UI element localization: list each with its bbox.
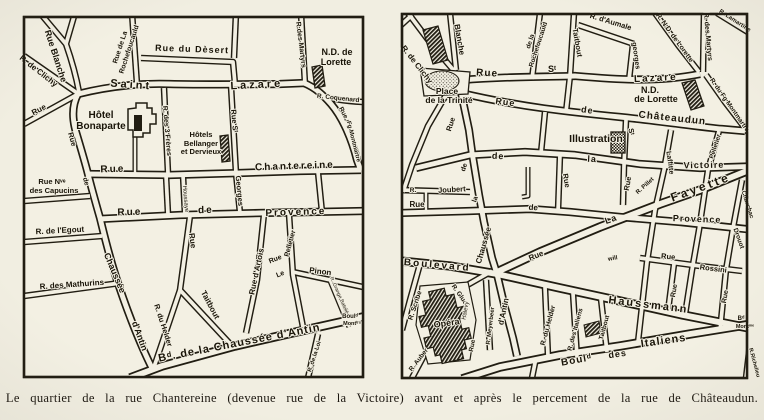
svg-text:Le quartier de la rue Chantere: Le quartier de la rue Chantereine (deven… xyxy=(6,391,758,405)
svg-text:Boulᵈ: Boulᵈ xyxy=(342,313,358,320)
svg-text:R.: R. xyxy=(410,187,417,194)
svg-text:Rue: Rue xyxy=(117,207,142,219)
svg-text:Provence: Provence xyxy=(265,206,326,219)
svg-text:Rue: Rue xyxy=(476,67,498,79)
svg-text:Hôtels: Hôtels xyxy=(190,130,213,139)
svg-text:de la Trinité: de la Trinité xyxy=(425,95,473,105)
svg-text:Lazare: Lazare xyxy=(634,72,678,85)
svg-text:Montᵗʳˢ: Montᵗʳˢ xyxy=(343,320,361,327)
svg-text:N.D. de: N.D. de xyxy=(321,47,352,57)
svg-text:Montᵐᵉ: Montᵐᵉ xyxy=(736,324,754,330)
svg-text:la: la xyxy=(587,154,597,164)
svg-text:de: de xyxy=(198,205,214,217)
svg-text:et Dervieux: et Dervieux xyxy=(181,147,222,156)
svg-text:Joubert: Joubert xyxy=(438,184,466,194)
svg-text:Lorette: Lorette xyxy=(321,57,352,67)
svg-text:Rue: Rue xyxy=(100,164,125,176)
svg-text:Bonaparte: Bonaparte xyxy=(76,121,126,132)
svg-text:Rue Nᵛᵉ: Rue Nᵛᵉ xyxy=(38,177,65,186)
svg-text:Hôtel: Hôtel xyxy=(89,110,114,121)
svg-text:de: de xyxy=(581,104,595,116)
svg-text:Rue: Rue xyxy=(409,200,425,209)
svg-text:Victoire: Victoire xyxy=(683,160,724,171)
svg-text:Bᵈ: Bᵈ xyxy=(738,315,745,322)
svg-text:Rue: Rue xyxy=(661,251,676,261)
svg-text:Provence: Provence xyxy=(673,213,722,225)
svg-text:Sᵗ: Sᵗ xyxy=(548,64,556,74)
svg-text:de: de xyxy=(492,151,505,162)
svg-text:de: de xyxy=(528,203,539,213)
svg-text:des Capucins: des Capucins xyxy=(30,186,79,195)
svg-text:de Lorette: de Lorette xyxy=(634,94,678,104)
svg-text:Illustration: Illustration xyxy=(569,133,623,145)
